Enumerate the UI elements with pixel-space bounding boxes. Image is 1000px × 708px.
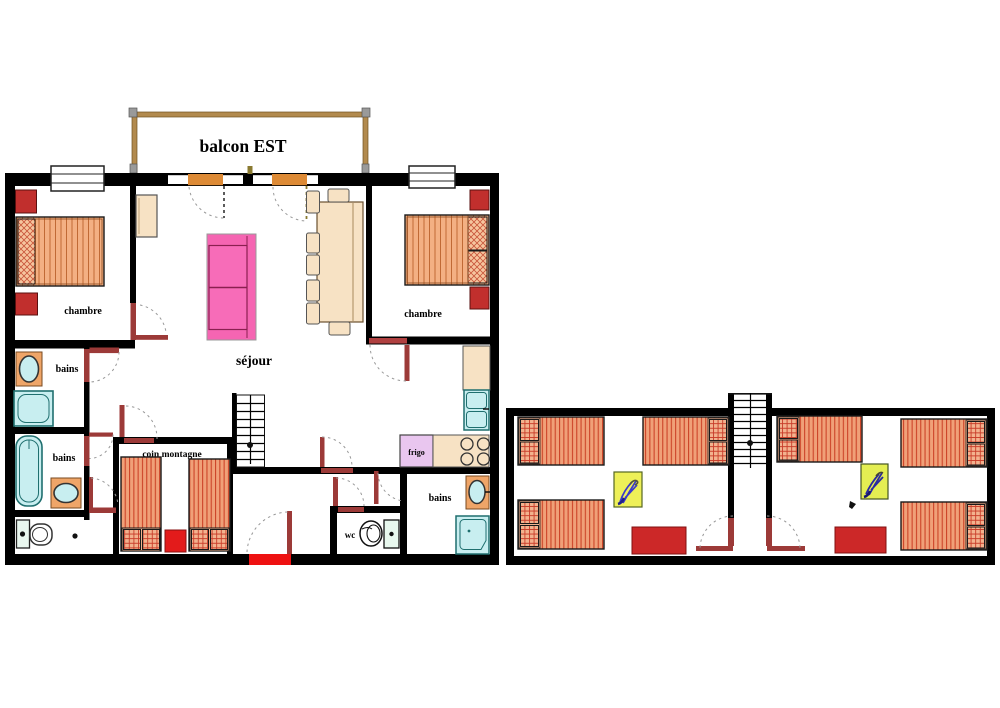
svg-text:bains: bains bbox=[429, 493, 452, 504]
svg-text:séjour: séjour bbox=[236, 353, 272, 368]
svg-text:bains: bains bbox=[53, 453, 76, 464]
svg-text:frigo: frigo bbox=[408, 448, 424, 457]
svg-text:wc: wc bbox=[345, 530, 356, 540]
svg-text:bains: bains bbox=[56, 364, 79, 375]
svg-text:balcon EST: balcon EST bbox=[199, 136, 286, 156]
svg-text:chambre: chambre bbox=[404, 309, 442, 320]
svg-text:chambre: chambre bbox=[64, 306, 102, 317]
